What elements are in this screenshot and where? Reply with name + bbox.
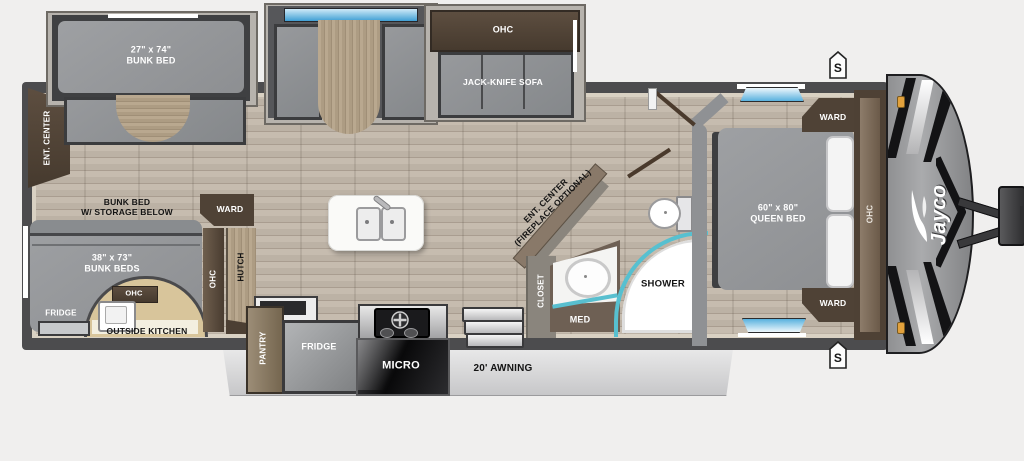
bedroom-door-jamb — [648, 88, 657, 110]
bedroom-window-bottom-sill — [738, 333, 806, 337]
floorplan-canvas: 20' AWNING ENT. CENTER BUNK BED W/ STORA… — [0, 0, 1024, 461]
bunk-edge-line2 — [32, 244, 200, 246]
jack-knife-sofa-label: JACK-KNIFE SOFA — [463, 77, 543, 87]
entry-step-3 — [466, 333, 524, 348]
awning-label: 20' AWNING — [473, 363, 532, 375]
island-sink-right — [381, 207, 406, 241]
dinette-bench-left — [274, 24, 322, 120]
speaker-bottom-letter: S — [834, 351, 842, 365]
dinette-bench-right — [382, 24, 430, 120]
pantry-label: PANTRY — [258, 331, 267, 364]
bunk-edge-line — [30, 233, 202, 236]
closet-label: CLOSET — [536, 274, 545, 308]
mid-ward-label: WARD — [217, 204, 244, 214]
bedroom-window-top — [740, 87, 804, 102]
speaker-badge-bottom: S — [829, 341, 847, 369]
toilet-drain — [664, 211, 667, 214]
bedroom-ward-bottom-label: WARD — [820, 298, 847, 308]
med-sink — [565, 258, 611, 298]
mid-ohc-label: OHC — [208, 270, 217, 288]
bedroom-ohc-label: OHC — [865, 205, 874, 223]
outside-sink-basin — [105, 306, 127, 324]
range-burner-left — [380, 328, 394, 338]
rear-bunk-label: 38" x 73" BUNK BEDS — [84, 252, 139, 273]
hutch-label: HUTCH — [236, 253, 245, 282]
speaker-top-letter: S — [834, 61, 842, 75]
range-burner-right — [404, 328, 418, 338]
front-cap: Jayco — [886, 74, 974, 354]
outside-fridge-drawer — [38, 321, 90, 336]
fridge-label: FRIDGE — [301, 342, 336, 353]
med-sink-drain — [584, 275, 587, 278]
fridge-box — [282, 320, 362, 394]
sofa-ohc-label: OHC — [493, 25, 514, 36]
island-sink-drain-left — [365, 220, 369, 224]
bunk-storage-note: BUNK BED W/ STORAGE BELOW — [81, 197, 173, 217]
bath-bedroom-wall — [692, 124, 707, 346]
queen-bed-label: 60" x 80" QUEEN BED — [750, 202, 805, 223]
microwave-label: MICRO — [382, 360, 420, 373]
bunk-slideout-label: 27" x 74" BUNK BED — [126, 44, 175, 65]
speaker-badge-top: S — [829, 51, 847, 79]
hitch-stub — [1020, 206, 1024, 220]
outside-kitchen-label: OUTSIDE KITCHEN — [107, 326, 188, 336]
island-sink-left — [356, 207, 381, 241]
cap-marker-light-bottom — [897, 322, 905, 334]
dinette-table — [318, 20, 380, 134]
bunk-slideout-window — [108, 14, 198, 18]
outside-ohc-label: OHC — [125, 290, 142, 299]
sofa-slide-window-strip — [573, 20, 577, 72]
bedroom-window-bottom — [742, 318, 806, 333]
queen-pillow-bottom — [826, 214, 854, 288]
bunk-bolster — [30, 220, 202, 233]
bedroom-ward-top-label: WARD — [820, 112, 847, 122]
jayco-logo-text: Jayco — [928, 185, 953, 246]
rear-window — [23, 226, 28, 298]
range-knob-icon — [390, 310, 410, 330]
island-sink-drain-right — [390, 220, 394, 224]
cap-marker-light-top — [897, 96, 905, 108]
queen-pillow-top — [826, 136, 854, 212]
rear-ent-center-label: ENT. CENTER — [42, 111, 51, 166]
med-label: MED — [570, 315, 591, 326]
shower-label: SHOWER — [641, 278, 685, 289]
outside-fridge-label: FRIDGE — [45, 308, 76, 317]
